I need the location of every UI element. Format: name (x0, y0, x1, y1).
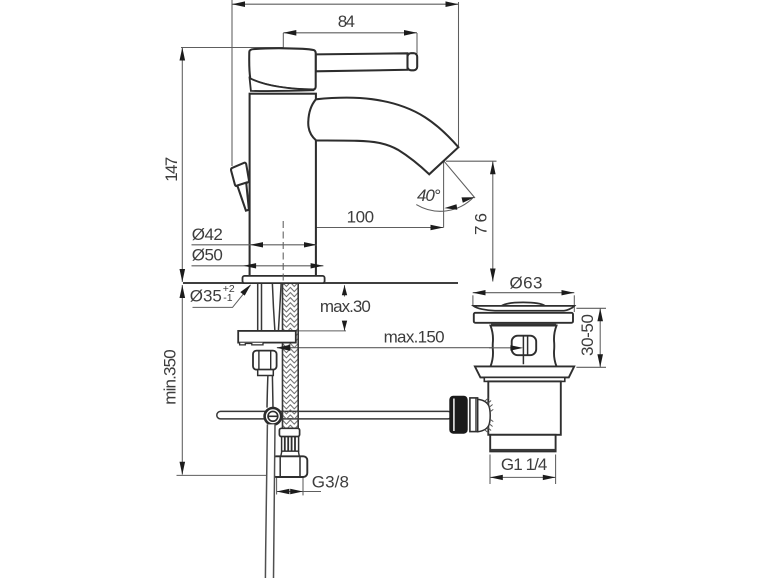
svg-text:84: 84 (338, 12, 355, 31)
svg-text:147: 147 (162, 157, 181, 182)
svg-text:Ø50: Ø50 (192, 246, 223, 265)
svg-text:-1: -1 (223, 292, 232, 304)
svg-text:G3/8: G3/8 (312, 472, 349, 491)
svg-text:Ø42: Ø42 (192, 225, 223, 244)
svg-text:max.30: max.30 (320, 297, 371, 316)
svg-text:G1 1/4: G1 1/4 (501, 455, 548, 474)
svg-text:Ø63: Ø63 (510, 274, 543, 293)
svg-text:min.350: min.350 (161, 349, 180, 405)
svg-text:max.150: max.150 (384, 328, 445, 347)
svg-text:100: 100 (347, 207, 375, 226)
svg-text:40°: 40° (417, 186, 441, 205)
svg-text:Ø35: Ø35 (190, 287, 222, 306)
svg-text:30-50: 30-50 (578, 314, 597, 356)
